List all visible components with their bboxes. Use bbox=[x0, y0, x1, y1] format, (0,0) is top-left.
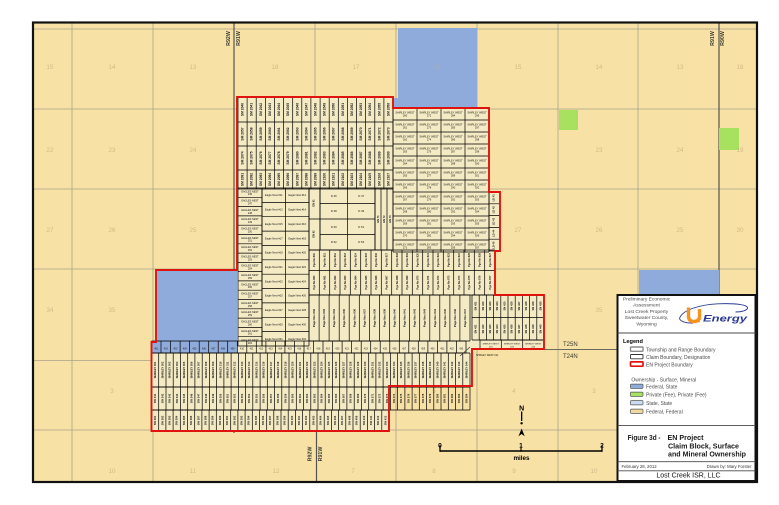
svg-text:SM 2100: SM 2100 bbox=[323, 173, 327, 186]
svg-text:273: 273 bbox=[427, 126, 432, 130]
svg-text:13: 13 bbox=[190, 64, 197, 71]
svg-text:D 46: D 46 bbox=[331, 194, 337, 198]
svg-text:293: 293 bbox=[451, 222, 456, 226]
svg-text:Page Nos 838: Page Nos 838 bbox=[372, 308, 376, 327]
svg-text:SHIRLEY 330: SHIRLEY 330 bbox=[363, 361, 367, 378]
svg-text:SHIRLEY 340: SHIRLEY 340 bbox=[435, 361, 439, 378]
svg-text:EN Project Boundary: EN Project Boundary bbox=[646, 362, 693, 368]
svg-text:Figure 3d -: Figure 3d - bbox=[628, 433, 662, 442]
svg-text:LD 44: LD 44 bbox=[492, 229, 496, 237]
svg-text:SHIRLEY 338: SHIRLEY 338 bbox=[421, 361, 425, 378]
svg-text:3: 3 bbox=[592, 388, 596, 395]
svg-text:SW 371: SW 371 bbox=[370, 393, 374, 403]
svg-text:289: 289 bbox=[451, 174, 456, 178]
svg-text:SW 379: SW 379 bbox=[428, 393, 432, 403]
svg-text:24: 24 bbox=[190, 147, 197, 154]
svg-text:11: 11 bbox=[190, 468, 197, 475]
svg-text:SW 378: SW 378 bbox=[421, 393, 425, 403]
svg-text:270: 270 bbox=[403, 234, 408, 238]
svg-text:Eagle Nest #26: Eagle Nest #26 bbox=[288, 294, 306, 298]
svg-text:430: 430 bbox=[431, 348, 436, 351]
svg-text:17: 17 bbox=[353, 64, 360, 71]
svg-text:SHIRLEY 343: SHIRLEY 343 bbox=[457, 361, 461, 378]
svg-text:SW 400: SW 400 bbox=[290, 415, 294, 425]
svg-text:miles: miles bbox=[513, 455, 530, 462]
svg-text:SM 2078: SM 2078 bbox=[277, 151, 281, 164]
svg-text:SHIRLEY 329: SHIRLEY 329 bbox=[356, 361, 360, 378]
svg-text:SN 438: SN 438 bbox=[524, 324, 528, 333]
svg-text:0: 0 bbox=[438, 442, 442, 449]
svg-text:SM 2103: SM 2103 bbox=[350, 173, 354, 186]
svg-text:SM 2085: SM 2085 bbox=[341, 151, 345, 164]
svg-text:405: 405 bbox=[192, 348, 197, 351]
svg-text:SHIRLEY 324: SHIRLEY 324 bbox=[320, 361, 324, 378]
svg-text:432: 432 bbox=[450, 348, 455, 351]
svg-text:18: 18 bbox=[737, 64, 744, 71]
svg-text:Pge No 872: Pge No 872 bbox=[436, 275, 440, 290]
svg-text:SM 2060: SM 2060 bbox=[268, 127, 272, 140]
svg-text:SM 2054: SM 2054 bbox=[368, 103, 372, 116]
svg-text:425: 425 bbox=[383, 348, 388, 351]
svg-text:306: 306 bbox=[475, 234, 480, 238]
svg-text:258: 258 bbox=[248, 305, 253, 308]
svg-text:SW 394: SW 394 bbox=[247, 415, 251, 425]
svg-text:260: 260 bbox=[403, 114, 408, 118]
svg-text:259: 259 bbox=[248, 314, 253, 317]
svg-text:Federal, State: Federal, State bbox=[646, 385, 678, 391]
svg-text:D 48: D 48 bbox=[331, 209, 337, 213]
svg-text:251: 251 bbox=[248, 240, 253, 243]
svg-text:SM 2079: SM 2079 bbox=[286, 151, 290, 164]
svg-text:427: 427 bbox=[402, 348, 407, 351]
svg-text:Eagle Nest #29: Eagle Nest #29 bbox=[265, 323, 283, 327]
svg-text:N: N bbox=[519, 406, 524, 413]
svg-text:SW 357: SW 357 bbox=[269, 393, 273, 403]
svg-text:Sweetwater County,: Sweetwater County, bbox=[625, 315, 668, 321]
svg-text:and Mineral Ownership: and Mineral Ownership bbox=[668, 450, 747, 459]
svg-text:SM 2091: SM 2091 bbox=[241, 173, 245, 186]
svg-text:1: 1 bbox=[519, 442, 523, 449]
svg-text:LD 43: LD 43 bbox=[492, 217, 496, 225]
svg-text:Pge No 869: Pge No 869 bbox=[405, 275, 409, 290]
svg-text:23: 23 bbox=[596, 147, 603, 154]
svg-text:249: 249 bbox=[248, 221, 253, 224]
svg-text:277: 277 bbox=[427, 174, 432, 178]
svg-text:298: 298 bbox=[475, 138, 480, 142]
svg-text:SHIRLEY WEST 221: SHIRLEY WEST 221 bbox=[476, 354, 499, 357]
svg-text:SW 390: SW 390 bbox=[218, 415, 222, 425]
svg-text:SW 398: SW 398 bbox=[275, 415, 279, 425]
svg-text:SW 386: SW 386 bbox=[189, 415, 193, 425]
svg-text:SM 2062: SM 2062 bbox=[286, 127, 290, 140]
svg-text:261: 261 bbox=[403, 126, 408, 130]
svg-text:296: 296 bbox=[475, 114, 480, 118]
svg-text:SW 365: SW 365 bbox=[327, 393, 331, 403]
svg-text:Pge No 860: Pge No 860 bbox=[312, 275, 316, 290]
svg-text:SHIRLEY 335: SHIRLEY 335 bbox=[399, 361, 403, 378]
svg-text:SHIRLEY 326: SHIRLEY 326 bbox=[334, 361, 338, 378]
svg-text:SW 344: SW 344 bbox=[175, 393, 179, 403]
svg-text:SW 407: SW 407 bbox=[340, 415, 344, 425]
svg-text:SW 384: SW 384 bbox=[464, 393, 468, 403]
svg-text:421: 421 bbox=[345, 348, 350, 351]
svg-text:SM 2047: SM 2047 bbox=[304, 103, 308, 116]
svg-text:SHIRLEY 332: SHIRLEY 332 bbox=[378, 361, 382, 378]
svg-text:Legend: Legend bbox=[623, 339, 643, 345]
svg-text:SN 440: SN 440 bbox=[538, 324, 542, 333]
svg-text:SM 2053: SM 2053 bbox=[359, 103, 363, 116]
svg-text:SM 2099: SM 2099 bbox=[314, 173, 318, 186]
svg-text:SW 380: SW 380 bbox=[435, 393, 439, 403]
svg-text:406: 406 bbox=[202, 348, 207, 351]
svg-text:285: 285 bbox=[451, 126, 456, 130]
svg-text:SW 413: SW 413 bbox=[383, 415, 387, 425]
svg-text:SW 343: SW 343 bbox=[168, 393, 172, 403]
svg-text:SM 2083: SM 2083 bbox=[323, 151, 327, 164]
svg-text:Township and Range Boundary: Township and Range Boundary bbox=[646, 347, 716, 353]
svg-text:Pge No 867: Pge No 867 bbox=[385, 275, 389, 290]
svg-text:Pge No 871: Pge No 871 bbox=[426, 275, 430, 290]
svg-text:35: 35 bbox=[596, 307, 603, 314]
svg-text:252: 252 bbox=[248, 249, 253, 252]
svg-text:SM 2081: SM 2081 bbox=[304, 151, 308, 164]
svg-text:418: 418 bbox=[316, 348, 321, 351]
svg-text:SW 391: SW 391 bbox=[225, 415, 229, 425]
svg-text:SHIRLEY 321: SHIRLEY 321 bbox=[298, 361, 302, 378]
svg-text:15: 15 bbox=[47, 64, 54, 71]
svg-text:SW 385: SW 385 bbox=[182, 415, 186, 425]
svg-text:3: 3 bbox=[110, 388, 114, 395]
svg-text:SHIRLEY 333: SHIRLEY 333 bbox=[385, 361, 389, 378]
svg-text:SM 2092: SM 2092 bbox=[250, 173, 254, 186]
svg-text:Pge No 817: Pge No 817 bbox=[385, 252, 389, 267]
svg-text:SM 2071: SM 2071 bbox=[368, 127, 372, 140]
svg-text:Claim Boundary, Designation: Claim Boundary, Designation bbox=[646, 355, 711, 361]
svg-text:EN 62: EN 62 bbox=[312, 230, 316, 238]
svg-text:SN 426: SN 426 bbox=[510, 301, 514, 310]
svg-text:SM 2074: SM 2074 bbox=[241, 151, 245, 164]
svg-text:D 51: D 51 bbox=[358, 225, 364, 229]
svg-text:SW 384: SW 384 bbox=[175, 415, 179, 425]
svg-text:SW 382: SW 382 bbox=[160, 415, 164, 425]
svg-text:257: 257 bbox=[248, 296, 253, 299]
svg-text:SM 2098: SM 2098 bbox=[304, 173, 308, 186]
svg-text:SHIRLEY 315: SHIRLEY 315 bbox=[255, 361, 259, 378]
svg-text:305: 305 bbox=[475, 222, 480, 226]
svg-text:Eagle Nest #31: Eagle Nest #31 bbox=[265, 337, 283, 341]
svg-text:Page Nos 839: Page Nos 839 bbox=[383, 308, 387, 327]
svg-text:282: 282 bbox=[427, 234, 432, 238]
svg-text:SN 439: SN 439 bbox=[531, 324, 535, 333]
svg-text:SHIRLEY 341: SHIRLEY 341 bbox=[443, 361, 447, 378]
svg-text:Pge No 816: Pge No 816 bbox=[374, 252, 378, 267]
svg-text:255: 255 bbox=[248, 277, 253, 280]
svg-text:SW 356: SW 356 bbox=[262, 393, 266, 403]
svg-text:Eagle Nest #22: Eagle Nest #22 bbox=[288, 265, 306, 269]
svg-text:Eagle Nest #19: Eagle Nest #19 bbox=[265, 251, 283, 255]
svg-text:SHIRLEY WEST: SHIRLEY WEST bbox=[483, 343, 500, 345]
svg-text:Assessment: Assessment bbox=[633, 303, 660, 309]
svg-text:Page Nos 843: Page Nos 843 bbox=[423, 308, 427, 327]
svg-text:SHIRLEY WEST: SHIRLEY WEST bbox=[525, 343, 542, 345]
svg-text:Pge No 813: Pge No 813 bbox=[343, 252, 347, 267]
svg-text:SHIRLEY 344: SHIRLEY 344 bbox=[464, 361, 468, 378]
svg-text:SW 381: SW 381 bbox=[443, 393, 447, 403]
svg-text:409: 409 bbox=[231, 348, 236, 351]
svg-text:Eagle Nest #20: Eagle Nest #20 bbox=[288, 251, 306, 255]
svg-text:SHIRLEY 311: SHIRLEY 311 bbox=[226, 361, 230, 378]
svg-text:Page Nos 840: Page Nos 840 bbox=[393, 308, 397, 327]
svg-text:SM 2102: SM 2102 bbox=[341, 173, 345, 186]
svg-text:420: 420 bbox=[335, 348, 340, 351]
svg-text:SHIRLEY 319: SHIRLEY 319 bbox=[283, 361, 287, 378]
svg-text:SN 437: SN 437 bbox=[517, 324, 521, 333]
svg-text:Pge No 811: Pge No 811 bbox=[323, 253, 327, 267]
svg-text:253: 253 bbox=[248, 258, 253, 261]
svg-text:R92W: R92W bbox=[308, 447, 314, 462]
svg-text:422: 422 bbox=[354, 348, 359, 351]
svg-text:Pge No 819: Pge No 819 bbox=[405, 252, 409, 267]
svg-text:SHIRLEY 327: SHIRLEY 327 bbox=[341, 361, 345, 378]
svg-text:7: 7 bbox=[351, 468, 355, 475]
svg-text:281: 281 bbox=[427, 222, 432, 226]
svg-text:SW 405: SW 405 bbox=[326, 415, 330, 425]
svg-text:SM 2095: SM 2095 bbox=[277, 173, 281, 186]
svg-text:283: 283 bbox=[427, 246, 432, 250]
svg-text:304: 304 bbox=[475, 210, 480, 214]
svg-text:SW 364: SW 364 bbox=[320, 393, 324, 403]
svg-text:SM 2056: SM 2056 bbox=[386, 103, 390, 116]
svg-text:SM 2090: SM 2090 bbox=[386, 151, 390, 164]
svg-text:288: 288 bbox=[451, 162, 456, 166]
svg-text:SM 2049: SM 2049 bbox=[323, 103, 327, 116]
svg-text:Page Nos 833: Page Nos 833 bbox=[322, 308, 326, 327]
svg-text:SM 2073: SM 2073 bbox=[386, 127, 390, 140]
svg-text:300: 300 bbox=[475, 162, 480, 166]
svg-text:Private (Fee), Private (Fee): Private (Fee), Private (Fee) bbox=[646, 393, 707, 399]
svg-text:Pge No 825: Pge No 825 bbox=[467, 252, 471, 267]
svg-text:EN 61: EN 61 bbox=[312, 199, 316, 207]
svg-text:Page Nos 841: Page Nos 841 bbox=[403, 308, 407, 327]
svg-text:411: 411 bbox=[250, 348, 254, 351]
svg-text:SHIRLEY 318: SHIRLEY 318 bbox=[276, 361, 280, 378]
svg-text:SM 2068: SM 2068 bbox=[341, 127, 345, 140]
svg-text:22: 22 bbox=[47, 147, 54, 154]
svg-text:404: 404 bbox=[183, 348, 188, 351]
svg-text:Eagle Nest #24: Eagle Nest #24 bbox=[288, 279, 306, 283]
svg-text:Eagle Nest #18: Eagle Nest #18 bbox=[288, 236, 306, 240]
svg-text:27: 27 bbox=[515, 227, 522, 234]
svg-text:D 50: D 50 bbox=[331, 225, 337, 229]
svg-text:Lost Creek ISR, LLC: Lost Creek ISR, LLC bbox=[656, 473, 720, 480]
svg-text:423: 423 bbox=[364, 348, 369, 351]
svg-text:SHIRLEY 301: SHIRLEY 301 bbox=[153, 361, 157, 378]
svg-text:SM 2104: SM 2104 bbox=[359, 173, 363, 186]
svg-text:250: 250 bbox=[248, 230, 253, 233]
svg-text:SM 2087: SM 2087 bbox=[359, 151, 363, 164]
svg-text:Eagle Nest #17: Eagle Nest #17 bbox=[265, 236, 283, 240]
svg-text:SN 429: SN 429 bbox=[531, 301, 535, 310]
svg-text:Eagle Nest #32: Eagle Nest #32 bbox=[288, 337, 306, 341]
svg-text:428: 428 bbox=[412, 348, 417, 351]
svg-text:Eagle Nest #27: Eagle Nest #27 bbox=[265, 308, 283, 312]
svg-text:SHIRLEY 305: SHIRLEY 305 bbox=[182, 361, 186, 378]
svg-text:265: 265 bbox=[403, 174, 408, 178]
svg-text:SM 2077: SM 2077 bbox=[268, 151, 272, 164]
svg-text:27: 27 bbox=[47, 227, 54, 234]
svg-text:SW 402: SW 402 bbox=[304, 415, 308, 425]
svg-text:Wyoming: Wyoming bbox=[636, 321, 657, 327]
svg-text:275: 275 bbox=[427, 150, 432, 154]
svg-text:SM 2070: SM 2070 bbox=[359, 127, 363, 140]
svg-text:Eagle Nest #14: Eagle Nest #14 bbox=[288, 208, 306, 212]
svg-text:407: 407 bbox=[211, 348, 216, 351]
svg-text:Eagle Nest #12: Eagle Nest #12 bbox=[288, 193, 306, 197]
svg-text:SM 2043: SM 2043 bbox=[268, 103, 272, 116]
svg-text:16: 16 bbox=[434, 64, 441, 71]
svg-text:SW 351: SW 351 bbox=[226, 393, 230, 403]
svg-text:23: 23 bbox=[109, 147, 116, 154]
svg-text:SN 423: SN 423 bbox=[488, 301, 492, 310]
svg-text:SM 2067: SM 2067 bbox=[332, 127, 336, 140]
svg-text:307: 307 bbox=[475, 246, 480, 250]
svg-text:SW 347: SW 347 bbox=[197, 393, 201, 403]
svg-text:EN 73: EN 73 bbox=[388, 215, 392, 223]
svg-text:290: 290 bbox=[451, 186, 456, 190]
svg-text:SHIRLEY 320: SHIRLEY 320 bbox=[291, 361, 295, 378]
svg-text:Pge No 876: Pge No 876 bbox=[478, 275, 482, 290]
svg-text:Eagle Nest #21: Eagle Nest #21 bbox=[265, 265, 283, 269]
svg-text:SW 382: SW 382 bbox=[450, 393, 454, 403]
svg-text:February 28, 2012: February 28, 2012 bbox=[622, 464, 658, 469]
svg-text:295: 295 bbox=[451, 246, 456, 250]
svg-text:SW 350: SW 350 bbox=[218, 393, 222, 403]
svg-text:8: 8 bbox=[432, 468, 436, 475]
svg-text:SN 421: SN 421 bbox=[474, 301, 478, 310]
svg-text:SN 433: SN 433 bbox=[488, 324, 492, 333]
svg-text:SM 2045: SM 2045 bbox=[286, 103, 290, 116]
svg-text:294: 294 bbox=[451, 234, 456, 238]
svg-text:297: 297 bbox=[475, 126, 480, 130]
svg-text:SW 341: SW 341 bbox=[153, 393, 157, 403]
svg-text:SHIRLEY 322: SHIRLEY 322 bbox=[305, 361, 309, 378]
svg-text:2: 2 bbox=[600, 442, 604, 449]
svg-text:SM 2082: SM 2082 bbox=[314, 151, 318, 164]
svg-text:D 47: D 47 bbox=[358, 194, 364, 198]
svg-text:SM 2044: SM 2044 bbox=[277, 103, 281, 116]
svg-text:SM 2075: SM 2075 bbox=[250, 151, 254, 164]
svg-text:Pge No 861: Pge No 861 bbox=[323, 275, 327, 290]
svg-text:SM 2089: SM 2089 bbox=[377, 151, 381, 164]
svg-text:30: 30 bbox=[737, 227, 744, 234]
svg-text:Pge No 814: Pge No 814 bbox=[354, 252, 358, 267]
svg-text:Eagle Nest #16: Eagle Nest #16 bbox=[288, 222, 306, 226]
svg-text:SHIRLEY 302: SHIRLEY 302 bbox=[160, 361, 164, 378]
svg-text:429: 429 bbox=[421, 348, 426, 351]
svg-text:Pge No 864: Pge No 864 bbox=[354, 275, 358, 290]
svg-text:SHIRLEY 304: SHIRLEY 304 bbox=[175, 361, 179, 378]
svg-text:R92W: R92W bbox=[226, 31, 232, 46]
svg-text:292: 292 bbox=[451, 210, 456, 214]
svg-text:SM 2076: SM 2076 bbox=[259, 151, 263, 164]
svg-text:SM 2042: SM 2042 bbox=[259, 103, 263, 116]
svg-text:276: 276 bbox=[427, 162, 432, 166]
svg-text:Pge No 865: Pge No 865 bbox=[364, 275, 368, 290]
svg-text:SHIRLEY 308: SHIRLEY 308 bbox=[204, 361, 208, 378]
svg-text:SN 427: SN 427 bbox=[517, 301, 521, 310]
svg-text:SM 2093: SM 2093 bbox=[259, 173, 263, 186]
svg-text:Pge No 821: Pge No 821 bbox=[426, 252, 430, 267]
svg-text:SM 2050: SM 2050 bbox=[332, 103, 336, 116]
svg-text:26: 26 bbox=[596, 227, 603, 234]
svg-text:SW 410: SW 410 bbox=[362, 415, 366, 425]
svg-text:SW 381: SW 381 bbox=[153, 415, 157, 425]
svg-text:SW 395: SW 395 bbox=[254, 415, 258, 425]
svg-text:SW 374: SW 374 bbox=[392, 393, 396, 403]
svg-text:EN 72: EN 72 bbox=[382, 215, 386, 223]
svg-text:SW 352: SW 352 bbox=[233, 393, 237, 403]
svg-text:Pge No 810: Pge No 810 bbox=[312, 252, 316, 267]
svg-text:25: 25 bbox=[677, 227, 684, 234]
svg-text:SN 431: SN 431 bbox=[474, 324, 478, 333]
svg-text:SW 401: SW 401 bbox=[297, 415, 301, 425]
svg-text:266: 266 bbox=[403, 186, 408, 190]
svg-text:Eagle Nest #30: Eagle Nest #30 bbox=[288, 323, 306, 327]
svg-text:D 49: D 49 bbox=[358, 209, 364, 213]
svg-text:Preliminary Economic: Preliminary Economic bbox=[623, 297, 671, 303]
svg-text:SW 366: SW 366 bbox=[334, 393, 338, 403]
svg-text:SW 383: SW 383 bbox=[457, 393, 461, 403]
svg-text:SHIRLEY 314: SHIRLEY 314 bbox=[247, 361, 251, 378]
svg-text:13: 13 bbox=[677, 64, 684, 71]
svg-text:SW 345: SW 345 bbox=[182, 393, 186, 403]
svg-text:SHIRLEY 336: SHIRLEY 336 bbox=[407, 361, 411, 378]
svg-text:SW 348: SW 348 bbox=[204, 393, 208, 403]
svg-text:SN 422: SN 422 bbox=[481, 301, 485, 310]
svg-text:SM 2057: SM 2057 bbox=[241, 127, 245, 140]
svg-text:SW 389: SW 389 bbox=[211, 415, 215, 425]
svg-text:Pge No 826: Pge No 826 bbox=[478, 252, 482, 267]
svg-text:SW 377: SW 377 bbox=[414, 393, 418, 403]
svg-text:256: 256 bbox=[248, 286, 253, 289]
svg-text:414: 414 bbox=[278, 348, 283, 351]
svg-text:260: 260 bbox=[248, 323, 253, 326]
svg-text:299: 299 bbox=[475, 150, 480, 154]
svg-text:287: 287 bbox=[451, 150, 456, 154]
svg-text:SM 2069: SM 2069 bbox=[350, 127, 354, 140]
svg-text:SM 2086: SM 2086 bbox=[350, 151, 354, 164]
svg-text:248: 248 bbox=[248, 212, 253, 215]
svg-text:LD 41: LD 41 bbox=[492, 194, 496, 202]
svg-text:SW 375: SW 375 bbox=[399, 393, 403, 403]
svg-text:Page Nos 835: Page Nos 835 bbox=[342, 308, 346, 327]
svg-text:SN 425: SN 425 bbox=[502, 301, 506, 310]
svg-text:417: 417 bbox=[307, 348, 312, 351]
svg-text:SN 428: SN 428 bbox=[524, 301, 528, 310]
svg-text:Page Nos 832: Page Nos 832 bbox=[312, 308, 316, 327]
svg-text:271: 271 bbox=[403, 246, 408, 250]
svg-text:SM 2080: SM 2080 bbox=[295, 151, 299, 164]
svg-text:SW 362: SW 362 bbox=[305, 393, 309, 403]
svg-text:SM 2058: SM 2058 bbox=[250, 127, 254, 140]
svg-text:Pge No 827: Pge No 827 bbox=[488, 252, 492, 267]
svg-text:SW 408: SW 408 bbox=[347, 415, 351, 425]
svg-text:Pge No 824: Pge No 824 bbox=[457, 252, 461, 267]
svg-text:Drawn by: Mary Forster: Drawn by: Mary Forster bbox=[707, 464, 752, 469]
svg-text:Pge No 820: Pge No 820 bbox=[416, 252, 420, 267]
svg-text:4: 4 bbox=[512, 388, 516, 395]
svg-text:9: 9 bbox=[512, 468, 516, 475]
